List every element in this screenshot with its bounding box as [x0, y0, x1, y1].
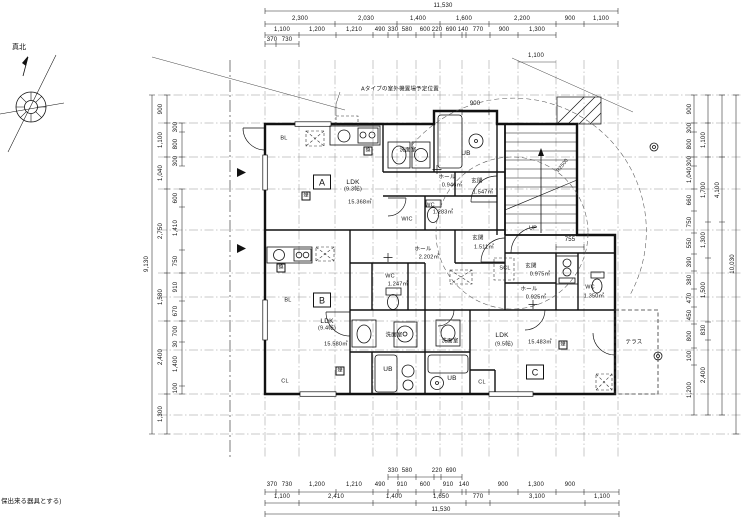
genkan-b-area: 1.511㎡	[474, 245, 494, 251]
dim: 1,400	[410, 16, 426, 22]
dim: 370	[267, 482, 278, 488]
dim: 900	[498, 482, 509, 488]
ldk-a-tatami: (9.3帖)	[344, 187, 362, 193]
genkan-b-label: 玄関	[472, 236, 483, 242]
dim-right-outer: 4,100	[715, 182, 721, 198]
genkan-c-label: 玄関	[525, 264, 536, 270]
dim: 2,030	[358, 16, 374, 22]
window-marks	[263, 122, 533, 397]
dim: 1,600	[456, 16, 472, 22]
ac-unit-box	[316, 247, 334, 261]
genkan-a-label: 玄関	[471, 179, 482, 185]
dim: 1,100	[701, 132, 707, 148]
ldk-a-area: 15.368㎡	[348, 200, 372, 206]
dim: 1,100	[274, 494, 290, 500]
dim: 910	[173, 282, 179, 293]
dim: 1,300	[529, 27, 545, 33]
dim: 750	[173, 256, 179, 267]
dim-bottom-total: 11,530	[431, 507, 450, 513]
vent-symbol-a: 換	[363, 147, 372, 156]
dim: 900	[687, 104, 693, 115]
dim: 910	[443, 482, 454, 488]
dim: 770	[473, 494, 484, 500]
dim: 220	[432, 27, 443, 33]
porch-hatch	[557, 97, 601, 124]
washroom-c-label: 洗面室	[441, 339, 458, 345]
dim: 140	[458, 27, 469, 33]
dim: 1,040	[158, 165, 164, 181]
bottom-note: 保出来る器具とする)	[1, 495, 61, 505]
hall-a-area: 0.946㎡	[442, 183, 462, 189]
dim: 450	[687, 310, 693, 321]
unit-b-tag: B	[313, 293, 331, 308]
dim: 300	[173, 122, 179, 133]
genkan-a-area: 1.547㎡	[473, 190, 493, 196]
dim: 600	[420, 482, 431, 488]
dim: 1,100	[158, 132, 164, 148]
dim: 1,100	[274, 27, 290, 33]
grid-lines	[158, 60, 742, 458]
dim: 100	[173, 383, 179, 394]
unit-bath-a-label: UB	[461, 151, 470, 158]
kitchen-a	[330, 126, 380, 145]
dim: 140	[459, 482, 470, 488]
washroom-a-label: 洗面室	[399, 148, 416, 154]
bl-b-label: BL	[284, 298, 291, 304]
dim: 910	[397, 482, 408, 488]
dim: 800	[687, 331, 693, 342]
dim: 2,400	[158, 349, 164, 365]
wc-b-label: WC	[385, 274, 395, 280]
dim: 830	[701, 325, 707, 336]
dim: 700	[173, 326, 179, 337]
dim: 2,300	[292, 16, 308, 22]
dim: 1,300	[701, 232, 707, 248]
wc-c-label: WC	[585, 285, 595, 291]
unit-b-tag-label: B	[319, 295, 325, 305]
dim: 900	[158, 104, 164, 115]
wic-a-label: WIC	[401, 217, 412, 223]
dim: 1,100	[593, 16, 609, 22]
dim: 900	[565, 16, 576, 22]
dim: 370	[267, 37, 278, 43]
compass-rose	[0, 55, 64, 152]
true-north-label: 真北	[12, 42, 26, 52]
dim: 730	[282, 482, 293, 488]
dim: 900	[499, 27, 510, 33]
meter-symbols	[650, 143, 662, 360]
smoke-symbol-c: 煙	[558, 341, 567, 350]
plan-linework	[0, 0, 747, 519]
dim: 580	[402, 27, 413, 33]
dim: 1,500	[701, 282, 707, 298]
hall-a-label: ホール	[438, 175, 455, 181]
dim: 1,650	[433, 494, 449, 500]
dim: 30	[173, 340, 179, 347]
hall-c-label: ホール	[520, 287, 537, 293]
bl-a-label: BL	[280, 136, 287, 142]
closet-c-label: CL	[478, 380, 485, 386]
kitchen-c	[556, 256, 578, 284]
dim: 2,400	[701, 367, 707, 383]
dim: 690	[446, 27, 457, 33]
dim: 730	[282, 37, 293, 43]
dim-diagonal: 1,100	[528, 53, 544, 59]
dim: 100	[687, 351, 693, 362]
floor-plan-canvas: 11,530 2,300 2,030 1,400 1,600 2,200 900…	[0, 0, 747, 519]
ldk-c-tatami: (9.5帖)	[495, 342, 513, 348]
dim: 1,300	[528, 482, 544, 488]
dim: 390	[687, 257, 693, 268]
dim: 380	[687, 275, 693, 286]
dim: 300	[687, 123, 693, 134]
dim: 800	[173, 139, 179, 150]
hall-c-area: 0.925㎡	[526, 295, 546, 301]
smoke-symbol-a: 煙	[301, 192, 310, 201]
ldk-b-area: 15.580㎡	[324, 342, 348, 348]
wc-a-label: WC	[425, 203, 435, 209]
hall-b-label: ホール	[414, 247, 431, 253]
unit-c-tag-label: C	[532, 367, 539, 377]
ac-unit-box	[596, 374, 612, 390]
unit-c-tag: C	[526, 365, 544, 380]
dim-right-total: 10,030	[730, 254, 736, 274]
scl-label: SCL	[499, 266, 510, 272]
dim: 1,580	[158, 289, 164, 305]
dim: 2,750	[158, 223, 164, 239]
ac-unit-box	[306, 131, 324, 146]
ac-unit-box	[450, 270, 472, 284]
dim: 1,210	[346, 27, 362, 33]
smoke-symbol-b: 煙	[335, 367, 344, 376]
dim: 490	[375, 27, 386, 33]
closet-b-label: CL	[281, 379, 288, 385]
dim: 1,040	[687, 167, 693, 183]
unit-bath-c-label: UB	[447, 376, 456, 383]
ldk-b-tatami: (9.4帖)	[318, 326, 336, 332]
dim: 3,100	[529, 494, 545, 500]
dim-top-total: 11,530	[433, 3, 452, 9]
unit-bath-b-label: UB	[383, 367, 392, 374]
dim: 750	[687, 217, 693, 228]
unit-bath-b	[375, 355, 414, 392]
dim: 1,200	[309, 27, 325, 33]
vent-symbol-b: 換	[276, 264, 285, 273]
unit-a-tag: A	[313, 175, 331, 190]
dimension-lines	[149, 8, 739, 517]
dim: 670	[173, 306, 179, 317]
kitchen-b	[267, 247, 312, 263]
note-leader-line	[336, 92, 340, 116]
dim: 770	[473, 27, 484, 33]
dim: 2,200	[514, 16, 530, 22]
dim: 580	[402, 468, 413, 474]
toilet-b	[386, 288, 401, 310]
stair-up-arrowhead	[538, 148, 544, 156]
ldk-c-label: LDK	[495, 333, 508, 340]
dim: 1,210	[346, 482, 362, 488]
dim: 1,300	[158, 406, 164, 422]
dim: 900	[565, 482, 576, 488]
terrace-outline	[615, 310, 658, 394]
dim: 1,200	[309, 482, 325, 488]
dim: 490	[375, 482, 386, 488]
dim: 600	[173, 193, 179, 204]
ldk-c-area: 15.483㎡	[528, 340, 552, 346]
wc-a-area: 1.283㎡	[433, 210, 453, 216]
wc-b-area: 1.247㎡	[388, 282, 408, 288]
unit-a-tag-label: A	[319, 177, 325, 187]
hall-b-area: 2.202㎡	[419, 255, 439, 261]
dim: 550	[687, 238, 693, 249]
dim: 470	[687, 293, 693, 304]
terrace-label: テラス	[626, 340, 643, 346]
washroom-b-label: 洗面室	[385, 333, 402, 339]
dim: 2,410	[328, 494, 344, 500]
dim: 300	[173, 156, 179, 167]
dim: 800	[687, 139, 693, 150]
dim: 1,200	[687, 382, 693, 398]
outdoor-unit-note: Aタイプの室外機置場予定位置	[361, 87, 439, 93]
dim: 1,410	[173, 220, 179, 236]
washroom-a	[388, 142, 430, 168]
dim-genkan-c: 755	[565, 237, 576, 243]
dim-left-total: 9,130	[144, 256, 150, 272]
genkan-c-area: 0.975㎡	[530, 272, 550, 278]
dim: 1,400	[173, 356, 179, 372]
dim: 300	[687, 156, 693, 167]
dim: 220	[432, 468, 443, 474]
dim: 330	[388, 27, 399, 33]
level-markers	[237, 168, 246, 253]
stairs-up-label: UP	[529, 226, 537, 232]
dim: 1,400	[386, 494, 402, 500]
dim: 690	[446, 468, 457, 474]
dim: 660	[687, 195, 693, 206]
wc-c-area: 1.350㎡	[584, 294, 604, 300]
dim: 1,700	[701, 182, 707, 198]
dim: 600	[420, 27, 431, 33]
dim: 330	[388, 468, 399, 474]
dim-stair-width: 900	[470, 101, 481, 107]
dim: 1,100	[594, 494, 610, 500]
